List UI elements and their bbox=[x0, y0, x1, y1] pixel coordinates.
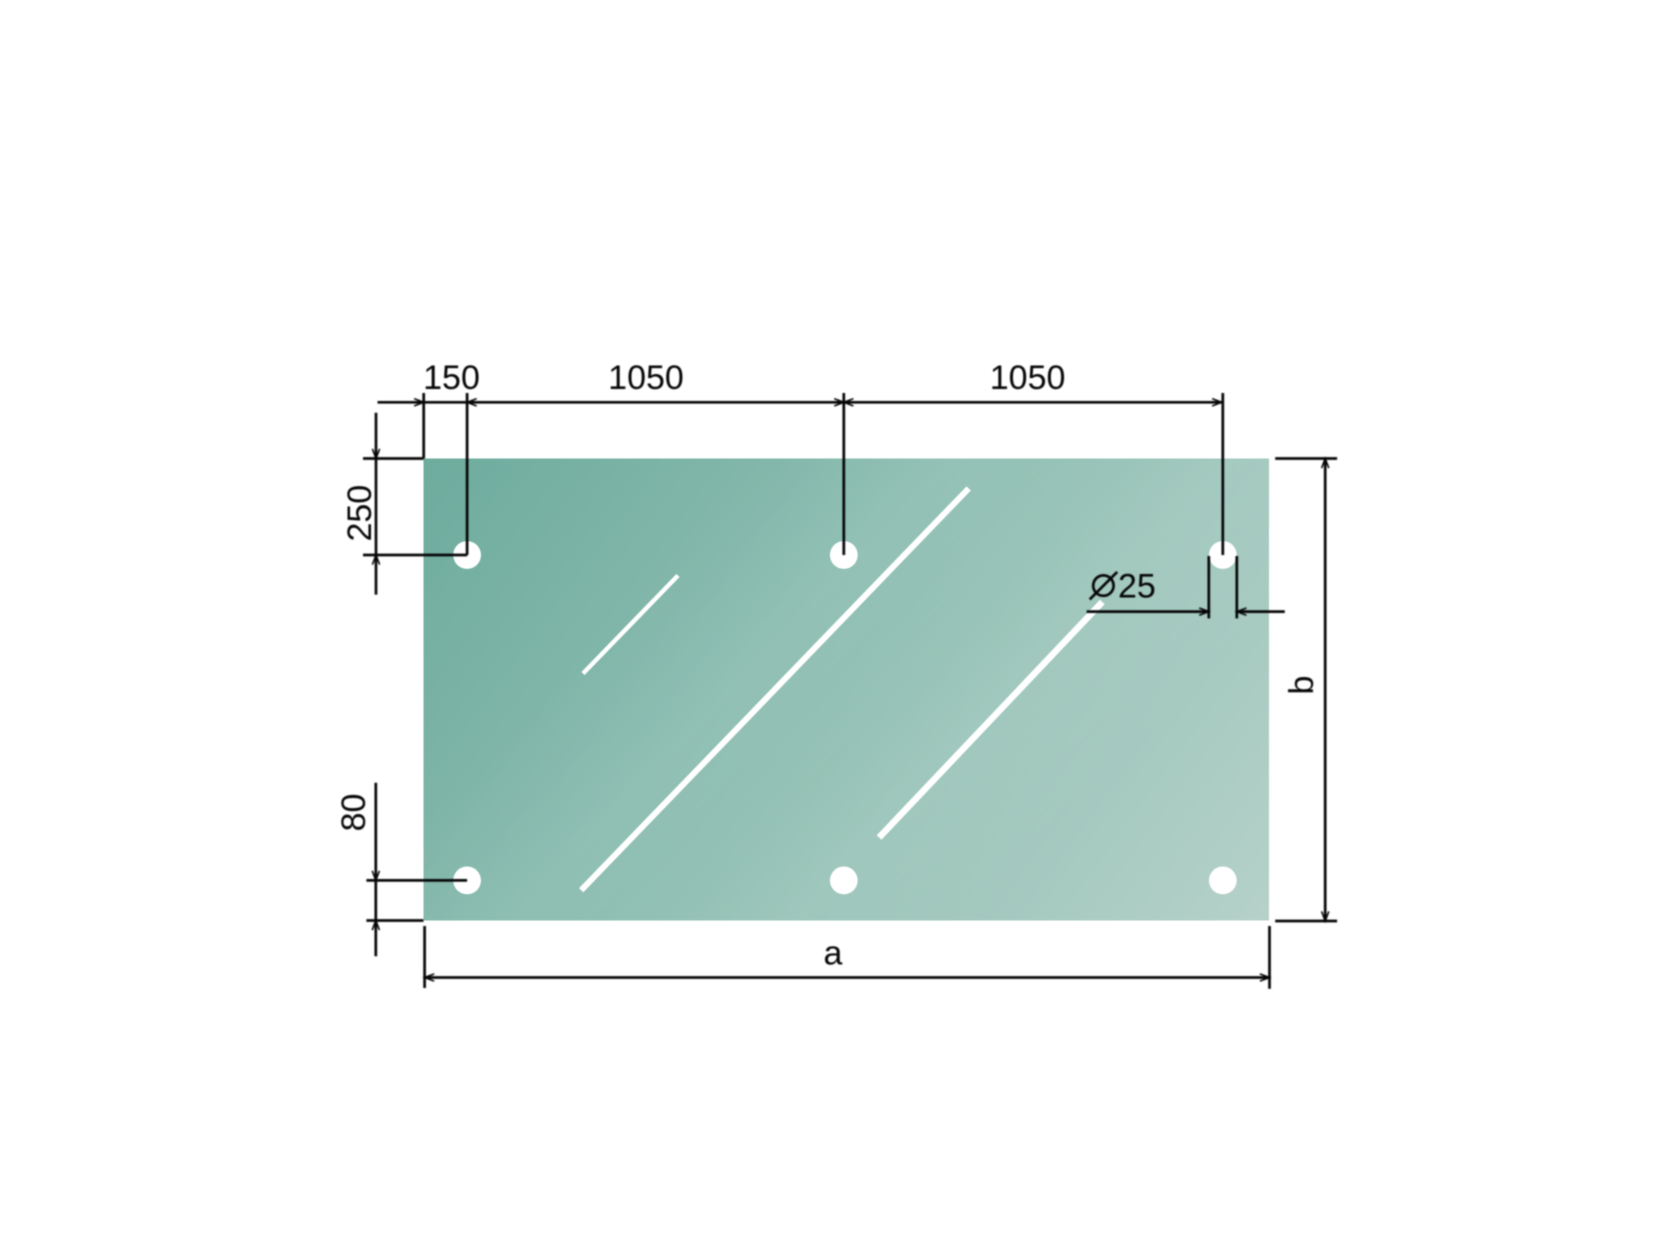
svg-text:250: 250 bbox=[341, 485, 379, 542]
svg-text:80: 80 bbox=[335, 794, 373, 832]
svg-text:150: 150 bbox=[423, 359, 480, 397]
svg-text:25: 25 bbox=[1118, 568, 1156, 606]
svg-text:1050: 1050 bbox=[608, 359, 684, 397]
svg-text:b: b bbox=[1283, 676, 1321, 695]
svg-text:a: a bbox=[824, 935, 843, 973]
svg-text:1050: 1050 bbox=[990, 359, 1066, 397]
